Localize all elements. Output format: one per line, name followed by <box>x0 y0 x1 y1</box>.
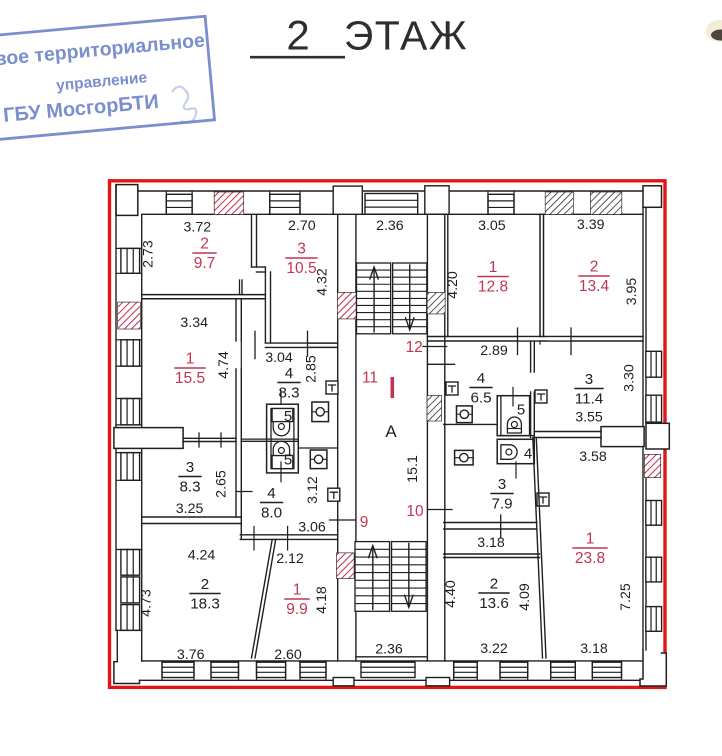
svg-text:10.5: 10.5 <box>286 260 316 277</box>
svg-text:18.3: 18.3 <box>190 596 220 613</box>
svg-text:10: 10 <box>406 503 424 520</box>
svg-text:4: 4 <box>285 365 293 382</box>
svg-text:2.60: 2.60 <box>274 647 302 663</box>
svg-text:4.09: 4.09 <box>517 583 533 611</box>
svg-text:4.40: 4.40 <box>443 580 459 608</box>
svg-text:4.24: 4.24 <box>188 548 216 564</box>
svg-text:4.18: 4.18 <box>314 586 330 614</box>
svg-text:2: 2 <box>200 236 209 253</box>
svg-text:4.74: 4.74 <box>216 351 232 379</box>
svg-text:3.30: 3.30 <box>622 364 638 392</box>
svg-text:4: 4 <box>477 370 485 387</box>
svg-text:9: 9 <box>360 514 369 531</box>
svg-text:6.5: 6.5 <box>470 390 491 407</box>
svg-text:А: А <box>385 422 397 441</box>
svg-text:12: 12 <box>406 339 423 356</box>
svg-text:5: 5 <box>517 402 525 419</box>
svg-text:2.73: 2.73 <box>141 240 157 268</box>
svg-text:2.65: 2.65 <box>214 470 230 498</box>
svg-text:8.3: 8.3 <box>278 385 299 402</box>
svg-text:3.12: 3.12 <box>305 476 321 504</box>
svg-text:3.58: 3.58 <box>579 449 607 465</box>
svg-text:3.18: 3.18 <box>477 535 505 551</box>
svg-text:2.36: 2.36 <box>376 218 404 234</box>
svg-text:15.1: 15.1 <box>405 455 421 483</box>
svg-text:3.22: 3.22 <box>480 641 508 657</box>
svg-text:3.18: 3.18 <box>580 641 608 657</box>
svg-text:2: 2 <box>286 12 309 59</box>
svg-text:3.04: 3.04 <box>265 350 293 366</box>
svg-text:5: 5 <box>284 408 292 425</box>
svg-text:2: 2 <box>490 576 498 593</box>
svg-text:13.4: 13.4 <box>579 278 610 295</box>
svg-text:1: 1 <box>293 582 302 599</box>
svg-text:2: 2 <box>590 259 599 276</box>
svg-text:13.6: 13.6 <box>479 595 509 612</box>
svg-text:1: 1 <box>186 351 195 368</box>
svg-text:12.8: 12.8 <box>478 279 508 296</box>
svg-text:3.34: 3.34 <box>180 315 208 331</box>
svg-text:1: 1 <box>489 259 498 276</box>
svg-text:2.12: 2.12 <box>276 551 304 567</box>
svg-text:3.76: 3.76 <box>177 647 205 663</box>
svg-text:3: 3 <box>498 476 506 493</box>
svg-text:3.39: 3.39 <box>577 217 605 233</box>
svg-text:4.73: 4.73 <box>139 589 155 617</box>
svg-text:3: 3 <box>585 371 593 388</box>
svg-text:4: 4 <box>524 446 532 463</box>
svg-text:15.5: 15.5 <box>175 370 205 387</box>
svg-text:3.06: 3.06 <box>298 520 326 536</box>
svg-text:23.8: 23.8 <box>575 550 605 567</box>
svg-text:8.0: 8.0 <box>261 505 282 522</box>
svg-text:3.95: 3.95 <box>624 278 640 306</box>
svg-text:7.25: 7.25 <box>618 583 634 611</box>
svg-text:2.70: 2.70 <box>288 218 316 234</box>
svg-text:4.20: 4.20 <box>445 271 461 299</box>
svg-text:8.3: 8.3 <box>179 479 200 496</box>
svg-text:3.72: 3.72 <box>183 220 211 236</box>
svg-text:1: 1 <box>586 531 595 548</box>
svg-text:4: 4 <box>267 485 275 502</box>
svg-text:7.9: 7.9 <box>491 496 512 513</box>
svg-text:3: 3 <box>297 241 306 258</box>
svg-text:2.89: 2.89 <box>480 343 508 359</box>
svg-text:3.25: 3.25 <box>176 501 204 517</box>
svg-text:11.4: 11.4 <box>575 391 603 408</box>
svg-text:9.7: 9.7 <box>194 255 216 272</box>
svg-text:5: 5 <box>284 452 292 469</box>
svg-text:9.9: 9.9 <box>286 601 308 618</box>
svg-text:2.36: 2.36 <box>375 642 403 658</box>
svg-text:3.55: 3.55 <box>575 410 603 426</box>
svg-text:ЭТАЖ: ЭТАЖ <box>344 13 468 59</box>
svg-text:11: 11 <box>362 370 378 387</box>
svg-text:2: 2 <box>201 576 209 593</box>
svg-text:2.85: 2.85 <box>304 355 320 383</box>
svg-text:3: 3 <box>186 459 194 476</box>
svg-text:4.32: 4.32 <box>315 268 331 296</box>
svg-text:3.05: 3.05 <box>478 218 506 234</box>
